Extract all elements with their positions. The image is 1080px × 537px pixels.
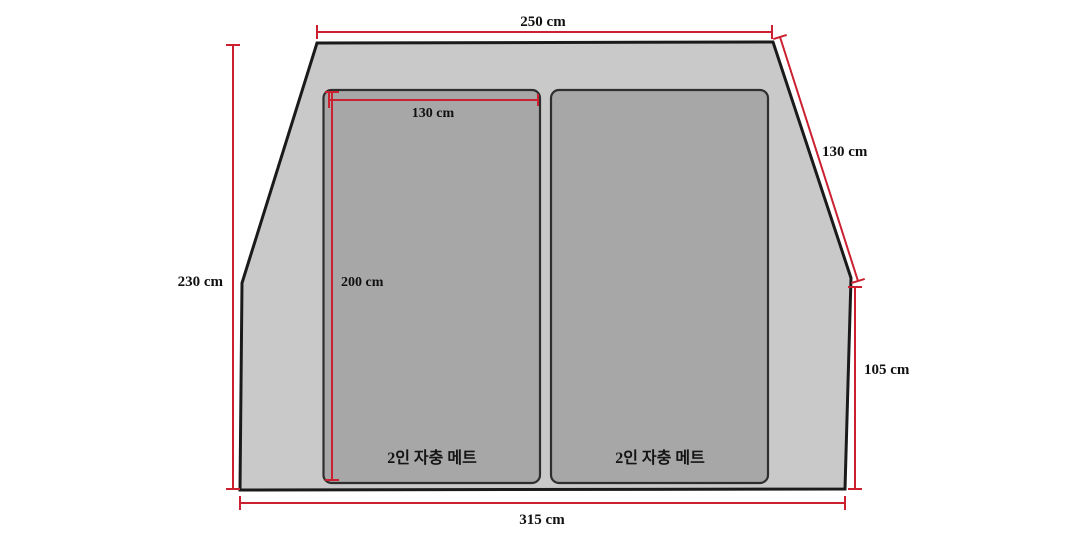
dim-top-width-label: 250 cm [520,14,566,30]
right-mat [551,90,768,483]
dim-left-height: 230 cm [178,45,240,489]
dim-bottom-width: 315 cm [240,496,845,528]
dim-right-side-label: 105 cm [864,362,910,378]
dim-mat-length-label: 200 cm [341,275,384,290]
left-mat-label: 2인 자충 메트 [387,449,477,467]
dim-right-side: 105 cm [848,287,910,489]
dim-right-slant-label: 130 cm [822,144,868,160]
right-mat-label: 2인 자충 메트 [615,449,705,467]
tent-floorplan-diagram: 2인 자충 메트 2인 자충 메트 250 cm 230 cm 315 cm [0,0,1080,537]
dim-bottom-width-label: 315 cm [519,512,565,528]
dim-left-height-label: 230 cm [178,274,224,290]
dim-mat-width-label: 130 cm [412,106,455,121]
tent-floorplan-canvas: 2인 자충 메트 2인 자충 메트 250 cm 230 cm 315 cm [0,0,1080,537]
dim-top-width: 250 cm [317,14,772,39]
